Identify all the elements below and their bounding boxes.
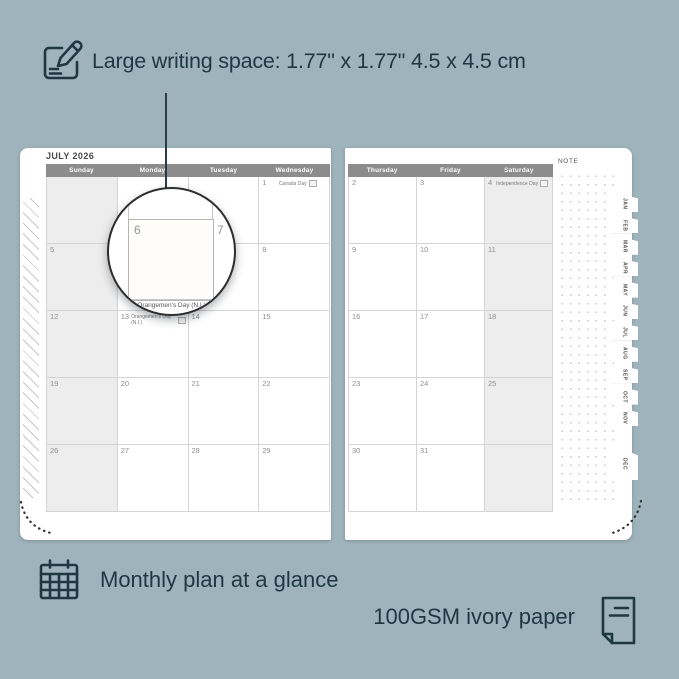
calendar-cell: 14: [189, 311, 260, 378]
magnified-grid-line: [212, 189, 213, 220]
month-tab-label: DEC: [622, 454, 628, 470]
date-number: 16: [352, 313, 360, 321]
day-header: Tuesday: [188, 164, 259, 177]
magnifier-circle: 6 7 13 Orangemen's Day (N.I.): [107, 187, 236, 316]
date-number: 23: [352, 380, 360, 388]
calendar-cell: 2: [349, 177, 417, 244]
calendar-cell: 24: [417, 378, 485, 445]
month-tab-jan: JAN: [611, 192, 638, 212]
month-tab-aug: AUG: [611, 342, 638, 362]
magnified-grid-line: [109, 299, 234, 300]
date-number: 3: [420, 179, 424, 187]
date-number: 26: [50, 447, 58, 455]
calendar-cell: 28: [189, 445, 260, 512]
date-number: 30: [352, 447, 360, 455]
note-label: NOTE: [558, 158, 620, 165]
calendar-cell: 17: [417, 311, 485, 378]
weekday-header-row: ThursdayFridaySaturday: [348, 164, 553, 177]
calendar-cell: 25: [485, 378, 553, 445]
month-tab-oct: OCT: [611, 385, 638, 405]
date-number: 5: [50, 246, 54, 254]
calendar-cell: 30: [349, 445, 417, 512]
flag-icon: [178, 317, 186, 324]
holiday-label: Independence Day: [494, 179, 550, 187]
month-title: JULY 2026: [46, 151, 94, 161]
flag-icon: [209, 302, 217, 309]
magnified-date-number: 7: [217, 223, 224, 237]
day-header: Friday: [416, 164, 484, 177]
month-tab-label: AUG: [622, 343, 628, 360]
date-number: 1: [262, 179, 266, 187]
date-number: 25: [488, 380, 496, 388]
calendar-cell: 16: [349, 311, 417, 378]
magnified-date-number: 6: [134, 223, 141, 237]
calendar-cell: 26: [47, 445, 118, 512]
day-header: Monday: [117, 164, 188, 177]
month-tab-label: OCT: [622, 387, 628, 403]
date-number: 28: [192, 447, 200, 455]
holiday-text: Canada Day: [279, 181, 307, 187]
calendar-cell: 8: [259, 244, 330, 311]
month-tab-label: NOV: [622, 408, 628, 424]
calendar-cell: [485, 445, 553, 512]
calendar-cell: 15: [259, 311, 330, 378]
calendar-cell: 9: [349, 244, 417, 311]
calendar-cell: 21: [189, 378, 260, 445]
note-dot-grid: [558, 172, 620, 507]
date-number: 31: [420, 447, 428, 455]
date-number: 13: [121, 313, 129, 321]
month-tab-nov: NOV: [611, 406, 638, 426]
month-tab-label: SEP: [622, 365, 628, 381]
date-number: 24: [420, 380, 428, 388]
date-number: 10: [420, 246, 428, 254]
calendar-cell: 11: [485, 244, 553, 311]
calendar-cell: 18: [485, 311, 553, 378]
date-number: 12: [50, 313, 58, 321]
calendar-icon: [35, 556, 83, 604]
date-number: 2: [352, 179, 356, 187]
date-number: 19: [50, 380, 58, 388]
month-tab-label: MAY: [622, 280, 628, 296]
planner-right-page: ThursdayFridaySaturday 234Independence D…: [345, 148, 632, 540]
calendar-grid: 234Independence Day910111617182324253031: [348, 177, 553, 512]
planner-product-image: Large writing space: 1.77" x 1.77" 4.5 x…: [0, 0, 679, 679]
date-number: 9: [352, 246, 356, 254]
calendar-cell: 12: [47, 311, 118, 378]
note-column: NOTE: [558, 158, 620, 510]
month-tab-feb: FEB: [611, 213, 638, 233]
holiday-text: Independence Day: [496, 181, 538, 187]
calendar-cell: [47, 177, 118, 244]
paper-sheet-icon: [596, 594, 640, 648]
date-number: 17: [420, 313, 428, 321]
month-tab-jul: JUL: [611, 320, 638, 340]
holiday-label: Canada Day: [268, 179, 327, 187]
date-number: 22: [262, 380, 270, 388]
date-number: 20: [121, 380, 129, 388]
day-header: Thursday: [348, 164, 416, 177]
month-tab-label: JUN: [622, 301, 628, 317]
flag-icon: [309, 180, 317, 187]
day-header: Sunday: [46, 164, 117, 177]
date-number: 29: [262, 447, 270, 455]
calendar-cell: 22: [259, 378, 330, 445]
holiday-label: Orangemen's Day (N.I.): [137, 302, 205, 309]
paper-callout: 100GSM ivory paper: [373, 604, 575, 630]
month-tab-sep: SEP: [611, 363, 638, 383]
date-number: 15: [262, 313, 270, 321]
calendar-cell: 31: [417, 445, 485, 512]
month-tab-label: JUL: [622, 323, 628, 338]
date-number: 11: [488, 246, 496, 254]
month-tab-jun: JUN: [611, 299, 638, 319]
date-number: 21: [192, 380, 200, 388]
flag-icon: [540, 180, 548, 187]
weekday-header-row: SundayMondayTuesdayWednesday: [46, 164, 330, 177]
month-tab-label: APR: [622, 258, 628, 274]
page-edge-hatching: [23, 198, 39, 498]
date-number: 4: [488, 179, 492, 187]
day-header: Wednesday: [259, 164, 330, 177]
month-tab-apr: APR: [611, 256, 638, 276]
calendar-cell: 20: [118, 378, 189, 445]
calendar-table-right: ThursdayFridaySaturday 234Independence D…: [348, 164, 553, 512]
date-number: 27: [121, 447, 129, 455]
calendar-cell: 27: [118, 445, 189, 512]
month-tab-dec: DEC: [611, 444, 638, 480]
writing-space-callout: Large writing space: 1.77" x 1.77" 4.5 x…: [92, 49, 526, 74]
pencil-notepad-icon: [38, 36, 84, 84]
month-tab-may: MAY: [611, 278, 638, 298]
date-number: 14: [192, 313, 200, 321]
calendar-cell: 29: [259, 445, 330, 512]
month-tab-label: FEB: [622, 216, 628, 232]
calendar-cell: 10: [417, 244, 485, 311]
monthly-plan-callout: Monthly plan at a glance: [100, 567, 339, 593]
month-tab-label: MAR: [622, 236, 628, 253]
calendar-cell: 19: [47, 378, 118, 445]
day-header: Saturday: [485, 164, 553, 177]
month-tab-mar: MAR: [611, 235, 638, 255]
magnified-grid-line: [128, 189, 129, 220]
calendar-cell: 13Orangemen's Day (N.I.): [118, 311, 189, 378]
calendar-cell: 23: [349, 378, 417, 445]
date-number: 8: [262, 246, 266, 254]
magnified-holiday-label: Orangemen's Day (N.I.): [127, 302, 227, 309]
calendar-cell: 3: [417, 177, 485, 244]
calendar-cell: 4Independence Day: [485, 177, 553, 244]
date-number: 18: [488, 313, 496, 321]
calendar-cell: 1Canada Day: [259, 177, 330, 244]
month-tab-label: JAN: [622, 194, 628, 210]
